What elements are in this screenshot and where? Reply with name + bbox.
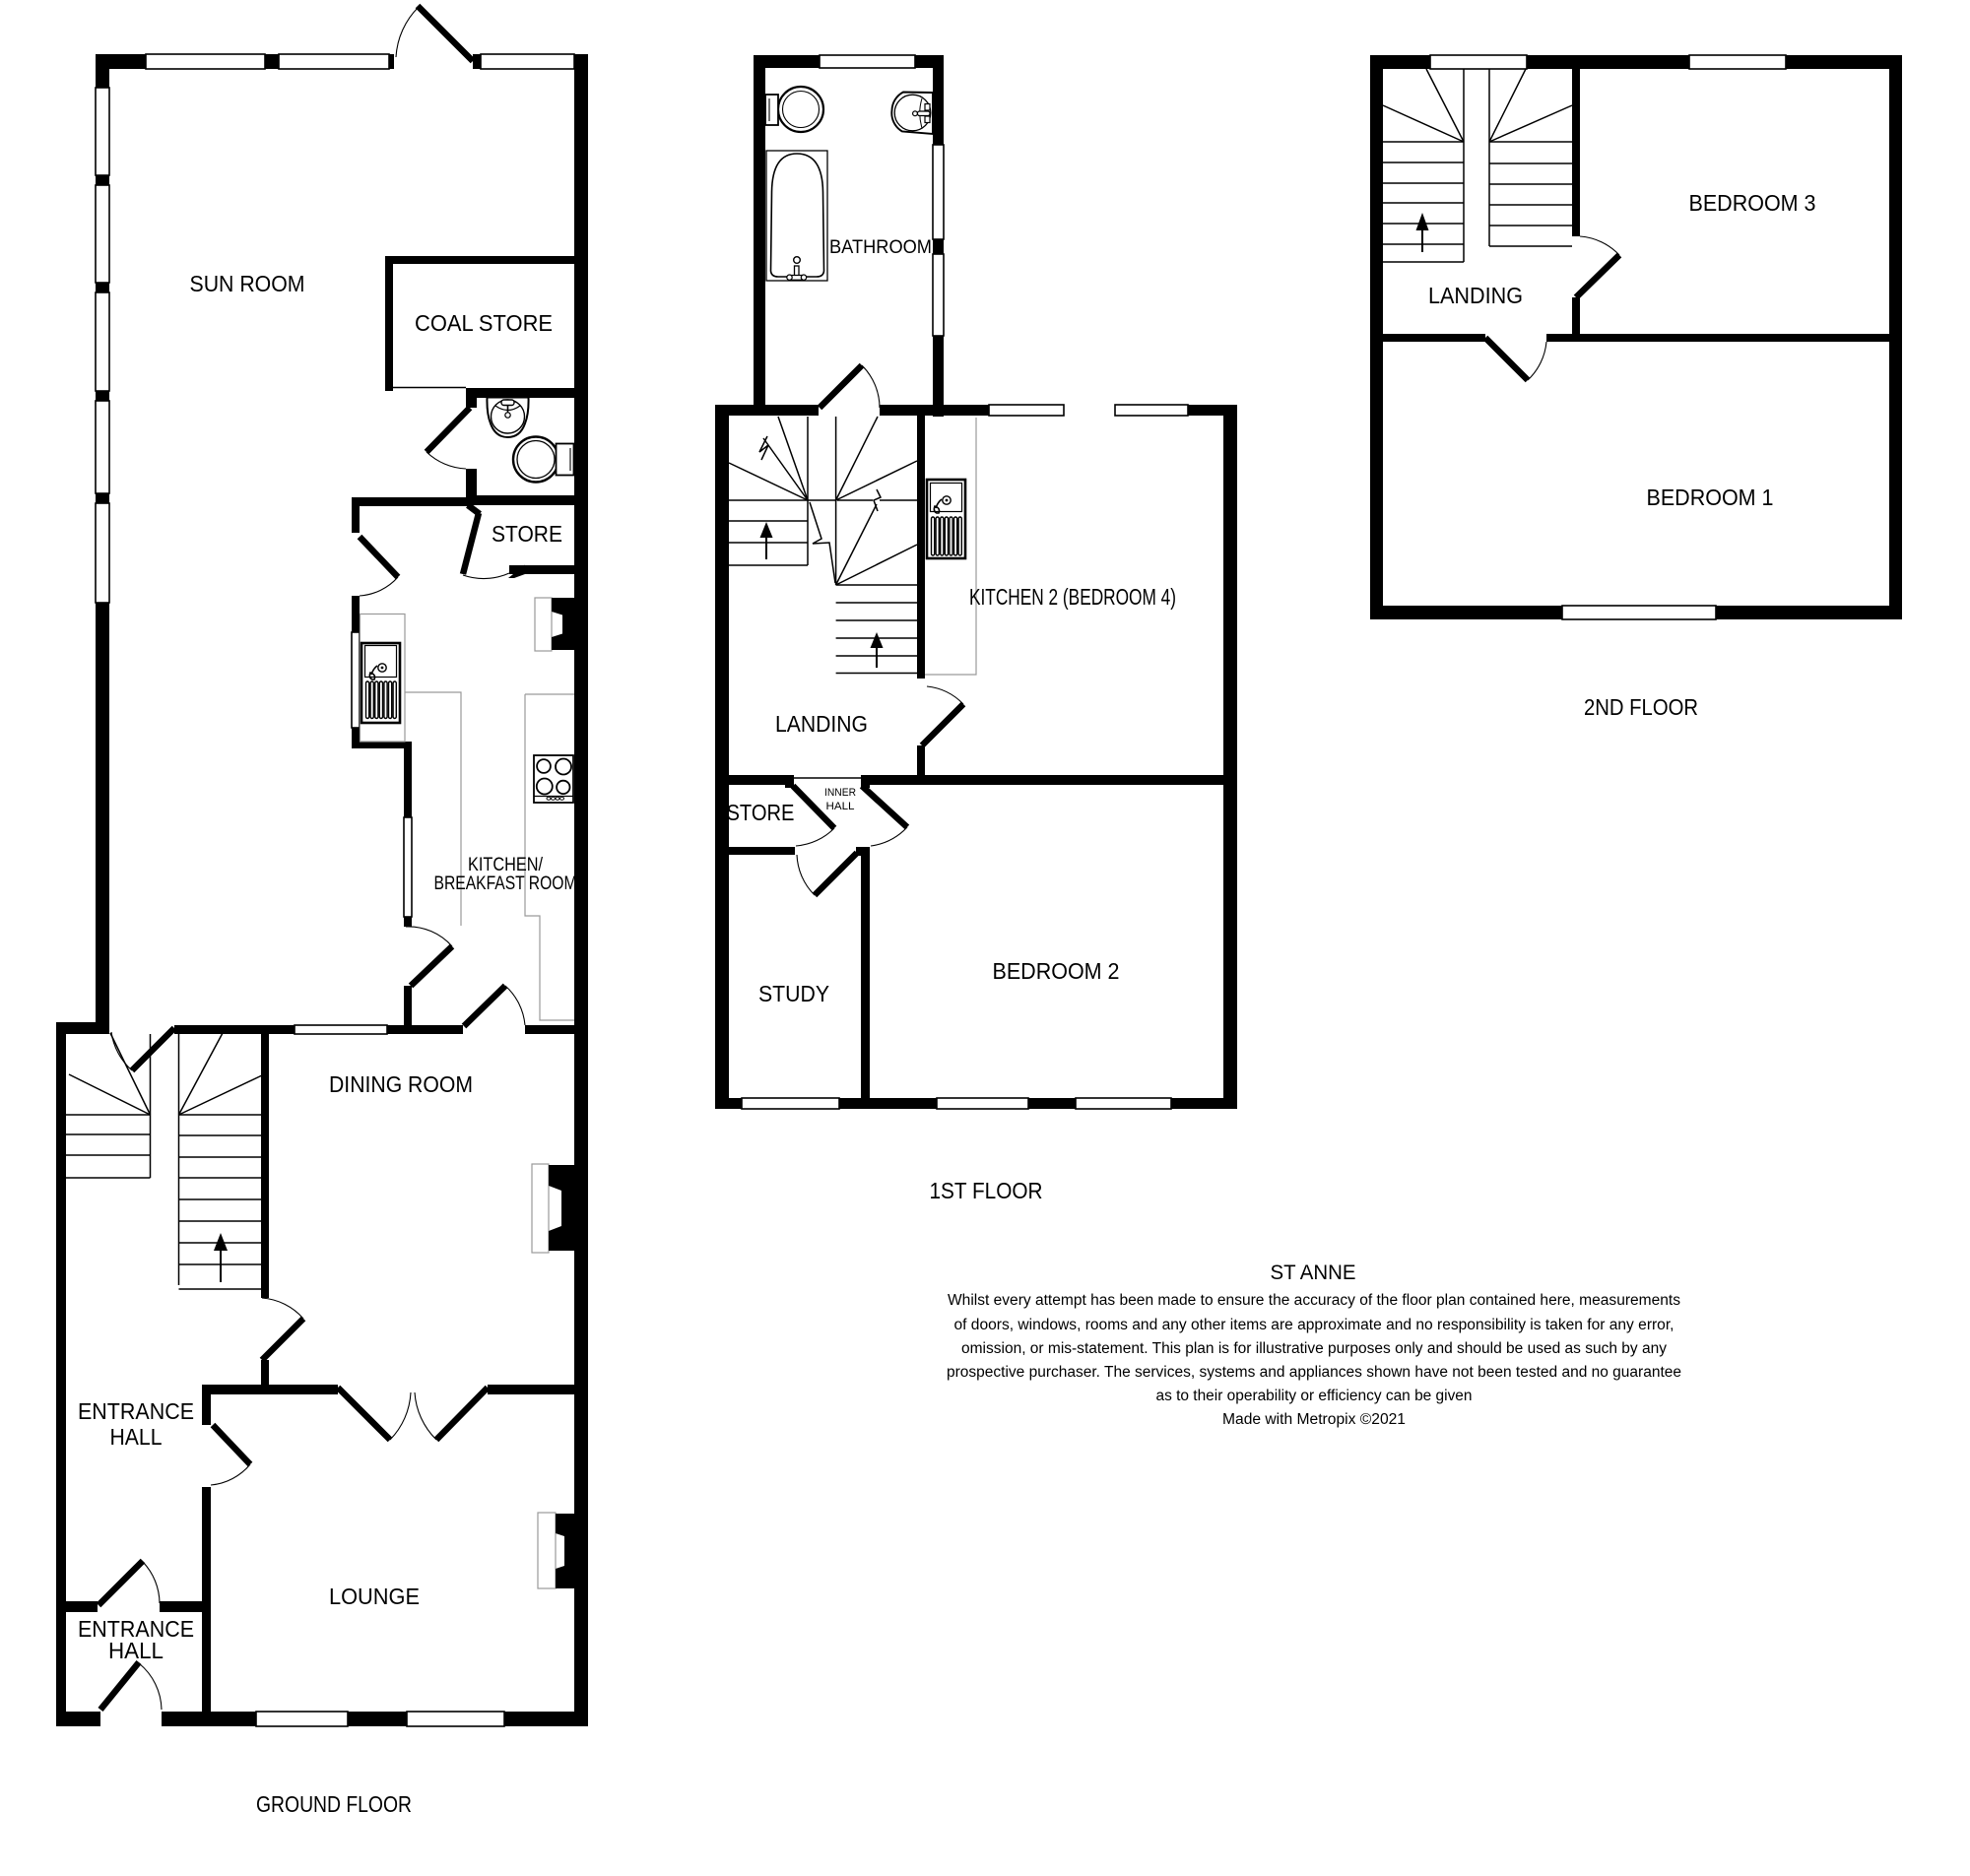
svg-text:GROUND FLOOR: GROUND FLOOR [256, 1791, 412, 1817]
svg-text:COAL STORE: COAL STORE [415, 310, 553, 336]
svg-text:LANDING: LANDING [775, 711, 868, 737]
svg-text:KITCHEN 2 (BEDROOM 4): KITCHEN 2 (BEDROOM 4) [969, 584, 1176, 610]
svg-text:ENTRANCE: ENTRANCE [78, 1398, 194, 1424]
svg-text:STORE: STORE [492, 521, 562, 547]
svg-text:BEDROOM 2: BEDROOM 2 [993, 958, 1120, 984]
svg-text:BREAKFAST ROOM: BREAKFAST ROOM [434, 873, 577, 894]
svg-text:SUN ROOM: SUN ROOM [190, 271, 305, 296]
svg-text:as to their operability or eff: as to their operability or efficiency ca… [1156, 1388, 1473, 1404]
svg-text:DINING ROOM: DINING ROOM [329, 1071, 473, 1097]
svg-text:BEDROOM 3: BEDROOM 3 [1689, 190, 1816, 216]
svg-text:1ST FLOOR: 1ST FLOOR [930, 1178, 1043, 1203]
svg-text:BEDROOM 1: BEDROOM 1 [1647, 485, 1774, 510]
svg-text:ST ANNE: ST ANNE [1271, 1261, 1356, 1284]
svg-text:LANDING: LANDING [1428, 283, 1523, 308]
svg-text:omission, or mis-statement. Th: omission, or mis-statement. This plan is… [961, 1340, 1667, 1357]
svg-text:HALL: HALL [108, 1638, 164, 1663]
svg-text:2ND FLOOR: 2ND FLOOR [1584, 694, 1698, 720]
svg-text:HALL: HALL [826, 801, 855, 812]
svg-text:KITCHEN/: KITCHEN/ [468, 855, 544, 875]
svg-text:STUDY: STUDY [758, 981, 829, 1006]
svg-text:of doors, windows, rooms and a: of doors, windows, rooms and any other i… [954, 1317, 1674, 1333]
svg-text:BATHROOM: BATHROOM [829, 237, 932, 258]
svg-text:Made with Metropix ©2021: Made with Metropix ©2021 [1222, 1411, 1406, 1428]
svg-text:HALL: HALL [110, 1424, 163, 1450]
svg-text:STORE: STORE [727, 800, 795, 825]
svg-text:Whilst every attempt has been: Whilst every attempt has been made to en… [948, 1292, 1680, 1309]
svg-text:prospective purchaser. The ser: prospective purchaser. The services, sys… [947, 1364, 1681, 1381]
svg-text:INNER: INNER [824, 787, 856, 799]
svg-text:LOUNGE: LOUNGE [329, 1584, 420, 1609]
